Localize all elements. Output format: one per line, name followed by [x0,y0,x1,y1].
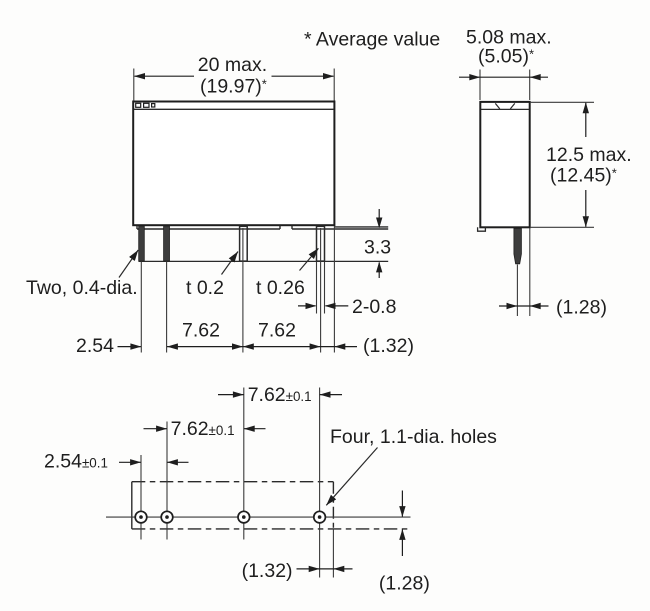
svg-text:(1.32): (1.32) [242,560,293,582]
svg-text:(1.28): (1.28) [556,296,607,318]
svg-text:Two, 0.4-dia.: Two, 0.4-dia. [26,277,138,299]
svg-text:(12.45)*: (12.45)* [550,165,617,187]
svg-text:3.3: 3.3 [364,236,391,258]
svg-text:2.54: 2.54 [76,335,114,357]
svg-text:7.62±0.1: 7.62±0.1 [171,418,235,440]
svg-text:7.62: 7.62 [258,319,296,341]
svg-text:20 max.: 20 max. [198,54,267,76]
svg-text:(1.32): (1.32) [363,335,414,357]
svg-text:t 0.26: t 0.26 [256,277,305,299]
svg-text:* Average value: * Average value [304,29,440,51]
svg-text:2.54±0.1: 2.54±0.1 [44,451,108,473]
svg-text:(5.05)*: (5.05)* [478,46,534,68]
svg-text:12.5 max.: 12.5 max. [546,144,632,166]
svg-text:2-0.8: 2-0.8 [352,296,396,318]
svg-text:Four, 1.1-dia. holes: Four, 1.1-dia. holes [330,426,497,448]
svg-text:(19.97)*: (19.97)* [200,75,267,97]
svg-text:(1.28): (1.28) [379,573,430,595]
svg-text:7.62±0.1: 7.62±0.1 [248,384,312,406]
svg-text:7.62: 7.62 [182,319,220,341]
svg-text:t 0.2: t 0.2 [186,277,224,299]
